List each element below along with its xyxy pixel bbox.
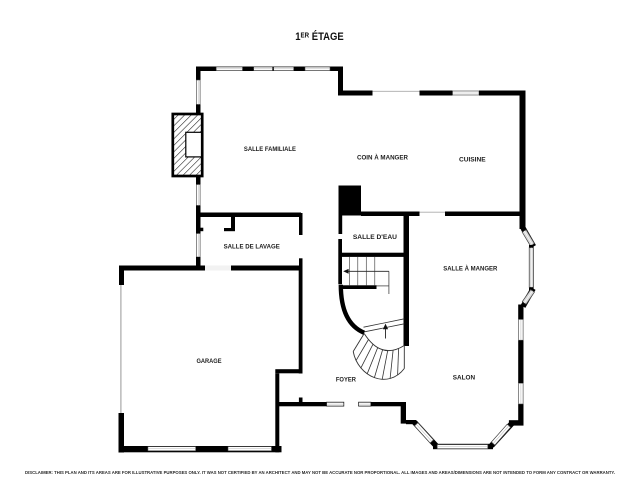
svg-text:CUISINE: CUISINE: [459, 156, 486, 163]
svg-text:SALLE D'EAU: SALLE D'EAU: [353, 234, 397, 241]
svg-text:1ER ÉTAGE: 1ER ÉTAGE: [295, 30, 344, 43]
svg-text:SALLE FAMILIALE: SALLE FAMILIALE: [244, 146, 296, 153]
svg-text:SALLE À MANGER: SALLE À MANGER: [443, 264, 497, 273]
svg-text:FOYER: FOYER: [336, 377, 356, 384]
svg-text:SALLE DE LAVAGE: SALLE DE LAVAGE: [224, 244, 281, 251]
svg-text:SALON: SALON: [453, 375, 475, 382]
svg-text:DISCLAIMER: THIS PLAN AND ITS: DISCLAIMER: THIS PLAN AND ITS AREAS ARE …: [25, 470, 615, 475]
svg-text:COIN À MANGER: COIN À MANGER: [357, 153, 408, 162]
svg-text:GARAGE: GARAGE: [197, 358, 222, 365]
